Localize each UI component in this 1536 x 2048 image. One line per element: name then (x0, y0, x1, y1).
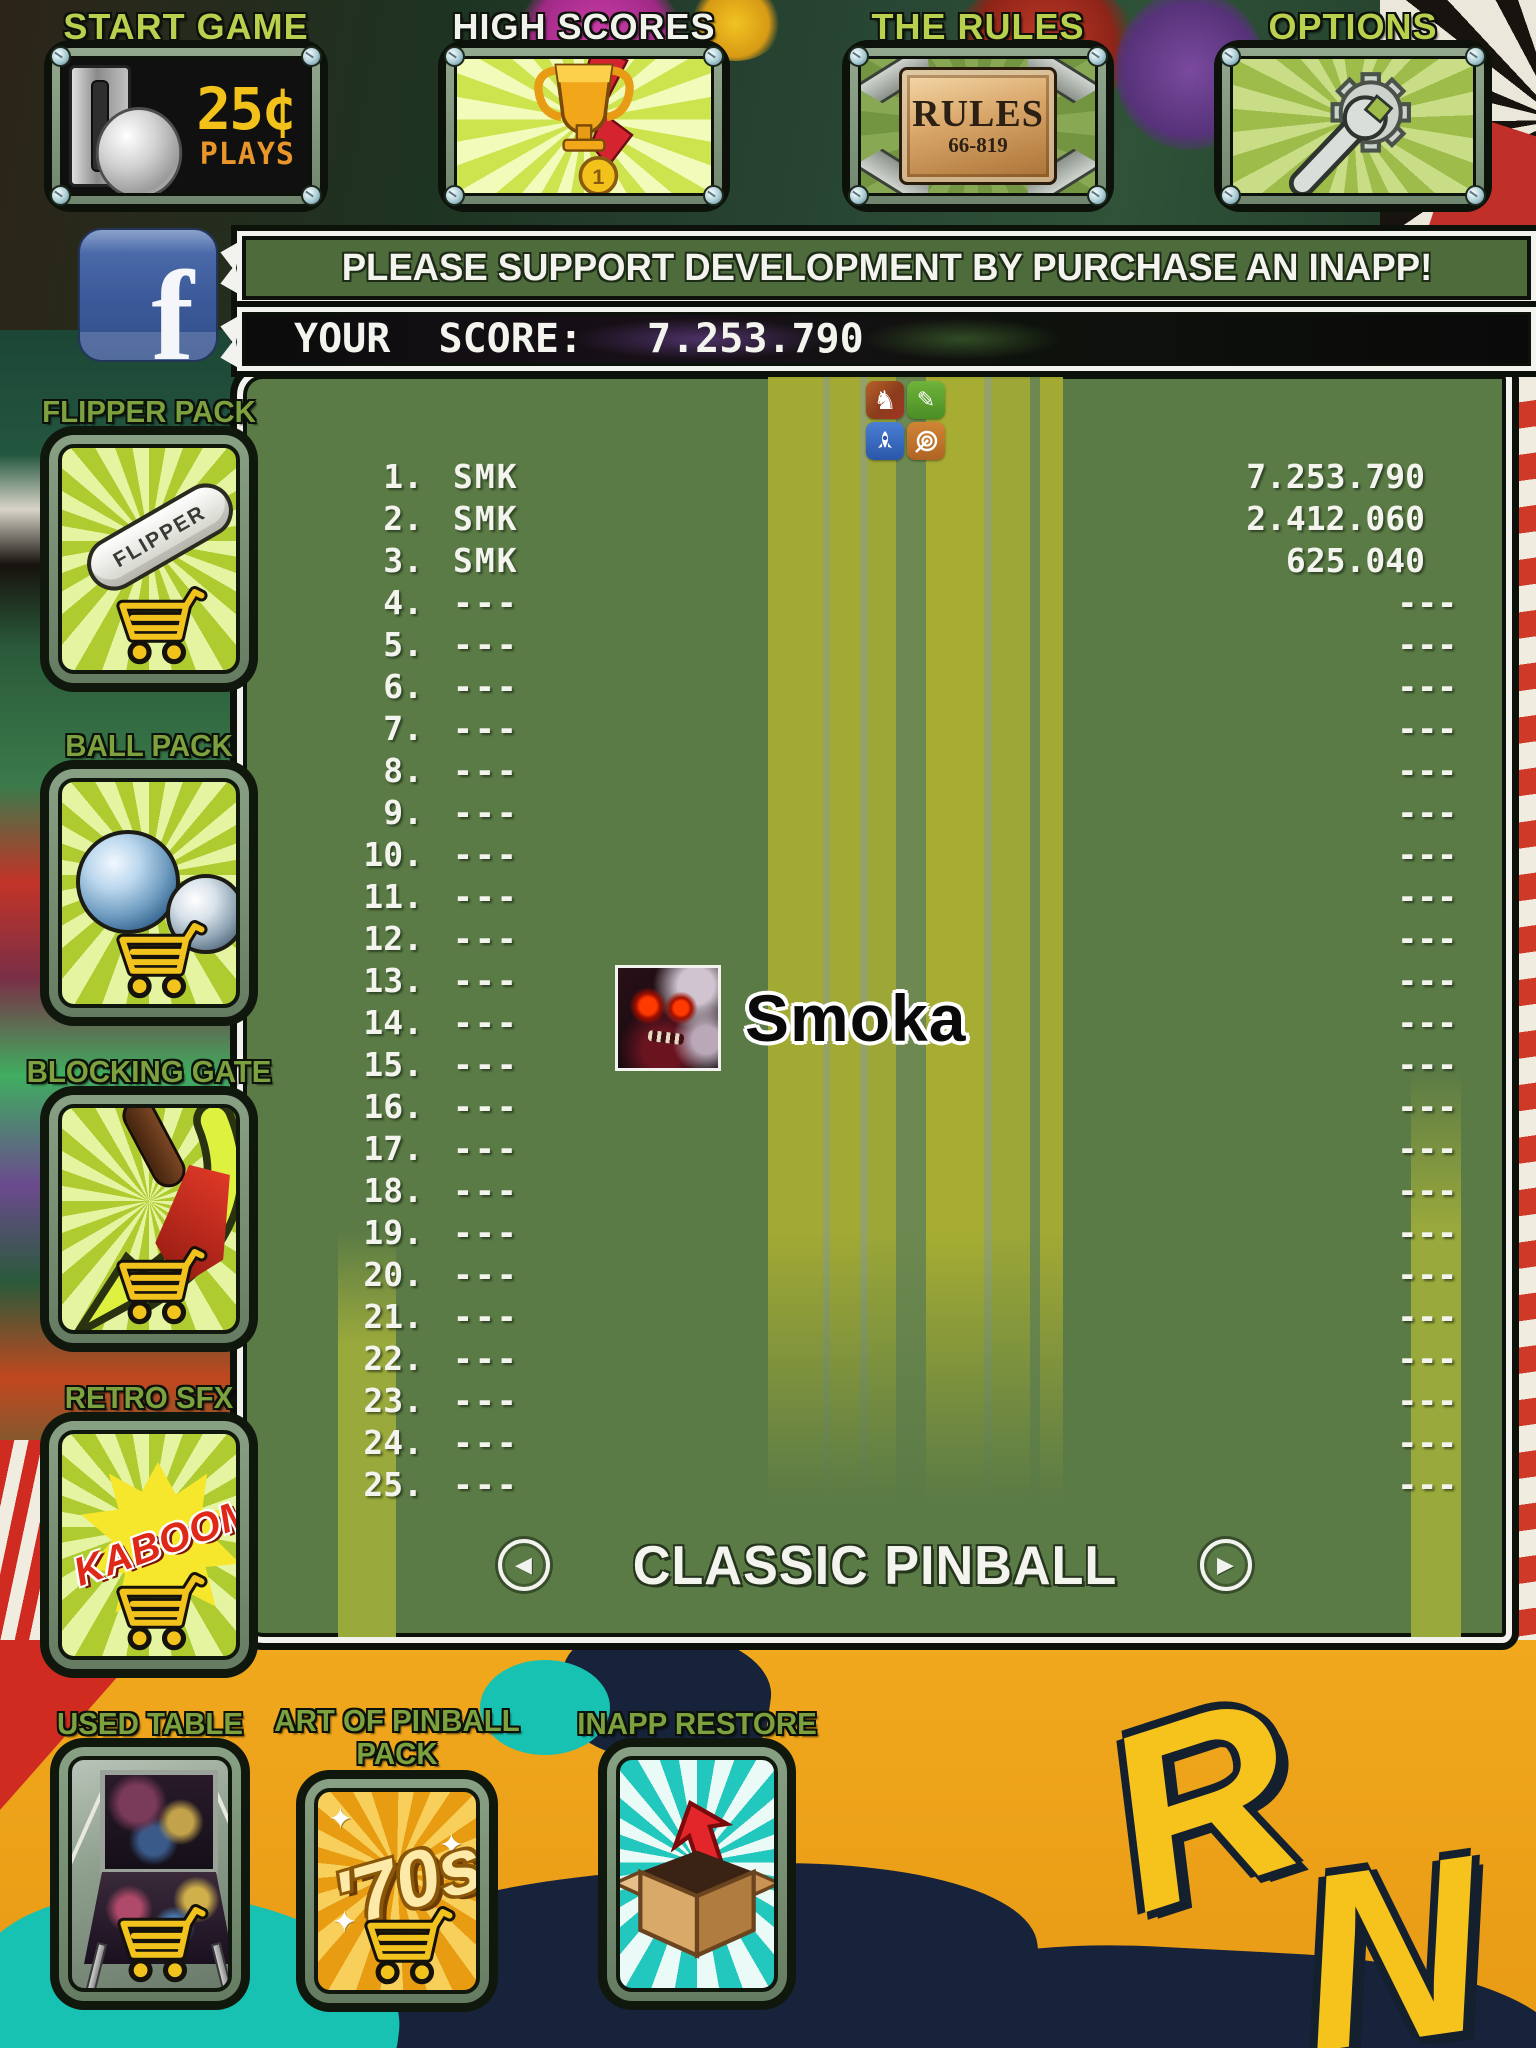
leaderboard-rank: 17. (271, 1129, 423, 1168)
player-overlay: Smoka (615, 965, 966, 1071)
leaderboard-rank: 14. (271, 1003, 423, 1042)
facebook-icon: f (151, 243, 194, 362)
pencil-app-icon[interactable]: ✎ (907, 381, 945, 419)
screw-icon (444, 46, 465, 67)
leaderboard-name: --- (453, 1255, 519, 1294)
cart-icon (108, 1240, 216, 1326)
leaderboard-name: --- (453, 919, 519, 958)
inapp-restore-button[interactable]: INAPP RESTORE (598, 1738, 796, 2010)
leaderboard-name: --- (453, 1423, 519, 1462)
leaderboard-rank: 20. (271, 1255, 423, 1294)
sparkle-icon: ✦ (328, 1802, 353, 1837)
background-graffiti-letters: R N (1040, 1650, 1536, 2048)
leaderboard-name: --- (453, 667, 519, 706)
medal-number: 1 (592, 164, 604, 189)
leaderboard-rank: 4. (271, 583, 423, 622)
highscores-panel: ♞ ✎ 1.SMK7.253.7902.SMK2.412.0603.SMK625… (237, 369, 1512, 1643)
app-icons-grid: ♞ ✎ (866, 381, 946, 460)
leaderboard-row: 17.------ (271, 1127, 1461, 1169)
screw-icon (301, 46, 322, 67)
leaderboard-row: 2.SMK2.412.060 (271, 497, 1461, 539)
retro-sfx-button[interactable]: RETRO SFX KABOOM (40, 1412, 258, 1678)
leaderboard-row: 18.------ (271, 1169, 1461, 1211)
rules-plaque-code: 66-819 (948, 133, 1008, 158)
chess-knight-app-icon[interactable]: ♞ (866, 381, 904, 419)
screw-icon (301, 185, 322, 206)
leaderboard-rank: 21. (271, 1297, 423, 1336)
screw-icon (1465, 46, 1486, 67)
cart-icon (108, 1566, 216, 1652)
leaderboard-name: SMK (453, 541, 519, 580)
leaderboard-name: --- (453, 709, 519, 748)
screw-icon (1220, 185, 1241, 206)
cart-icon (356, 1900, 464, 1986)
support-banner: PLEASE SUPPORT DEVELOPMENT BY PURCHASE A… (237, 231, 1536, 305)
leaderboard-score: --- (1397, 835, 1461, 874)
screw-icon (50, 46, 71, 67)
trophy-icon: 1 (524, 56, 644, 196)
rocket-app-icon[interactable] (866, 422, 904, 460)
start-game-button[interactable]: START GAME 25¢ PLAYS (44, 40, 328, 212)
ball-pack-button[interactable]: BALL PACK (40, 760, 258, 1026)
leaderboard-name: --- (453, 625, 519, 664)
leaderboard-rank: 24. (271, 1423, 423, 1462)
leaderboard-row: 10.------ (271, 833, 1461, 875)
leaderboard-row: 22.------ (271, 1337, 1461, 1379)
leaderboard-rank: 23. (271, 1381, 423, 1420)
leaderboard-row: 8.------ (271, 749, 1461, 791)
leaderboard-row: 6.------ (271, 665, 1461, 707)
coin-icon (96, 107, 182, 196)
leaderboard-score: --- (1397, 1339, 1461, 1378)
leaderboard-score: --- (1397, 667, 1461, 706)
leaderboard-rank: 25. (271, 1465, 423, 1504)
leaderboard-score: --- (1397, 1297, 1461, 1336)
your-score-label: YOUR SCORE: (294, 316, 583, 362)
flipper-text: FLIPPER (110, 501, 211, 573)
support-banner-text: PLEASE SUPPORT DEVELOPMENT BY PURCHASE A… (341, 247, 1432, 290)
leaderboard-name: --- (453, 877, 519, 916)
leaderboard-score: --- (1397, 1423, 1461, 1462)
coin-price: 25¢ (196, 81, 295, 137)
restore-box-icon (616, 1789, 778, 1969)
leaderboard-row: 12.------ (271, 917, 1461, 959)
flipper-pack-button[interactable]: FLIPPER PACK FLIPPER (40, 426, 258, 692)
leaderboard-score: 2.412.060 (1246, 499, 1461, 538)
screw-icon (1087, 46, 1108, 67)
used-table-label: USED TABLE (57, 1706, 243, 1742)
leaderboard-name: --- (453, 835, 519, 874)
screw-icon (703, 46, 724, 67)
rules-plaque: RULES 66-819 (899, 67, 1057, 185)
leaderboard-score: --- (1397, 877, 1461, 916)
leaderboard-rank: 22. (271, 1339, 423, 1378)
table-selector: ◀ CLASSIC PINBALL ▶ (243, 1525, 1506, 1605)
leaderboard-name: --- (453, 1087, 519, 1126)
leaderboard-rank: 1. (271, 457, 423, 496)
leaderboard-row: 4.------ (271, 581, 1461, 623)
player-avatar (615, 965, 721, 1071)
leaderboard-name: SMK (453, 457, 519, 496)
screw-icon (50, 185, 71, 206)
wrench-gear-icon (1278, 56, 1428, 196)
leaderboard-score: --- (1397, 625, 1461, 664)
leaderboard-score: --- (1397, 919, 1461, 958)
leaderboard-row: 24.------ (271, 1421, 1461, 1463)
art-of-pinball-pack-button[interactable]: ART OF PINBALL PACK ✦ ✦ ✦ '70s (296, 1770, 498, 2012)
high-scores-button[interactable]: HIGH SCORES 1 (438, 40, 730, 212)
used-table-button[interactable]: USED TABLE (50, 1738, 250, 2010)
leaderboard-rank: 11. (271, 877, 423, 916)
cart-icon (108, 914, 216, 1000)
leaderboard-score: 7.253.790 (1246, 457, 1461, 496)
leaderboard-rank: 12. (271, 919, 423, 958)
leaderboard-name: --- (453, 1129, 519, 1168)
leaderboard-row: 7.------ (271, 707, 1461, 749)
screw-icon (848, 185, 869, 206)
leaderboard-name: --- (453, 1003, 519, 1042)
prev-arrow-icon: ◀ (515, 1552, 532, 1578)
screw-icon (1220, 46, 1241, 67)
flipper-pack-label: FLIPPER PACK (42, 394, 256, 430)
leaderboard-rank: 19. (271, 1213, 423, 1252)
leaderboard-name: --- (453, 1297, 519, 1336)
leaderboard-rank: 9. (271, 793, 423, 832)
leaderboard-rank: 5. (271, 625, 423, 664)
retro-sfx-label: RETRO SFX (65, 1380, 234, 1416)
pinball-machine-backbox (100, 1770, 218, 1874)
leaderboard-rank: 18. (271, 1171, 423, 1210)
blocking-gate-label: BLOCKING GATE (27, 1054, 272, 1090)
leaderboard-name: --- (453, 1045, 519, 1084)
leaderboard-score: --- (1397, 793, 1461, 832)
screw-icon (1465, 185, 1486, 206)
leaderboard-name: --- (453, 1213, 519, 1252)
leaderboard-rank: 8. (271, 751, 423, 790)
leaderboard-score: --- (1397, 961, 1461, 1000)
leaderboard-score: --- (1397, 1213, 1461, 1252)
leaderboard-row: 5.------ (271, 623, 1461, 665)
leaderboard-rank: 16. (271, 1087, 423, 1126)
leaderboard-rank: 3. (271, 541, 423, 580)
the-rules-button[interactable]: THE RULES RULES 66-819 (842, 40, 1114, 212)
leaderboard-score: --- (1397, 1045, 1461, 1084)
options-button[interactable]: OPTIONS (1214, 40, 1492, 212)
player-name: Smoka (745, 980, 966, 1056)
leaderboard-name: --- (453, 961, 519, 1000)
ball-pack-label: BALL PACK (65, 728, 232, 764)
leaderboard-score: --- (1397, 709, 1461, 748)
art-of-pinball-pack-label: ART OF PINBALL PACK (274, 1704, 519, 1770)
leaderboard-name: --- (453, 1339, 519, 1378)
leaderboard-row: 20.------ (271, 1253, 1461, 1295)
leaderboard-rank: 2. (271, 499, 423, 538)
leaderboard-score: --- (1397, 1171, 1461, 1210)
leaderboard-name: --- (453, 1465, 519, 1504)
leaderboard-row: 19.------ (271, 1211, 1461, 1253)
leaderboard-name: --- (453, 1171, 519, 1210)
leaderboard-score: --- (1397, 1255, 1461, 1294)
leaderboard-row: 3.SMK625.040 (271, 539, 1461, 581)
facebook-button[interactable]: f (78, 228, 218, 362)
leaderboard-row: 16.------ (271, 1085, 1461, 1127)
leaderboard-score: --- (1397, 1129, 1461, 1168)
screw-icon (1087, 185, 1108, 206)
leaderboard-name: --- (453, 583, 519, 622)
leaderboard-score: 625.040 (1286, 541, 1461, 580)
your-score-value: 7.253.790 (647, 316, 864, 362)
blocking-gate-button[interactable]: BLOCKING GATE (40, 1086, 258, 1352)
pinball-highscores-screen: R N START GAME 25¢ PLAYS HIGH SCORES (0, 0, 1536, 2048)
cart-icon (109, 1898, 217, 1984)
plays-label: PLAYS (200, 137, 295, 172)
inapp-restore-label: INAPP RESTORE (577, 1706, 816, 1742)
screw-icon (703, 185, 724, 206)
leaderboard-row: 25.------ (271, 1463, 1461, 1505)
rules-plaque-title: RULES (912, 95, 1044, 133)
leaderboard-score: --- (1397, 1087, 1461, 1126)
screw-icon (444, 185, 465, 206)
target-app-icon[interactable] (907, 422, 945, 460)
leaderboard-name: --- (453, 1381, 519, 1420)
leaderboard-name: --- (453, 793, 519, 832)
leaderboard-score: --- (1397, 1003, 1461, 1042)
leaderboard-row: 1.SMK7.253.790 (271, 455, 1461, 497)
leaderboard-row: 23.------ (271, 1379, 1461, 1421)
table-name: CLASSIC PINBALL (632, 1533, 1117, 1597)
prev-table-button[interactable]: ◀ (498, 1539, 550, 1591)
leaderboard-name: SMK (453, 499, 519, 538)
leaderboard-rank: 10. (271, 835, 423, 874)
next-table-button[interactable]: ▶ (1200, 1539, 1252, 1591)
leaderboard-rank: 6. (271, 667, 423, 706)
leaderboard-rank: 7. (271, 709, 423, 748)
leaderboard-score: --- (1397, 583, 1461, 622)
cart-icon (108, 580, 216, 666)
leaderboard-rank: 13. (271, 961, 423, 1000)
your-score-bar: YOUR SCORE: 7.253.790 (237, 307, 1536, 371)
next-arrow-icon: ▶ (1217, 1552, 1234, 1578)
leaderboard-row: 21.------ (271, 1295, 1461, 1337)
leaderboard-score: --- (1397, 1381, 1461, 1420)
leaderboard-row: 9.------ (271, 791, 1461, 833)
screw-icon (848, 46, 869, 67)
leaderboard-name: --- (453, 751, 519, 790)
leaderboard-score: --- (1397, 1465, 1461, 1504)
leaderboard-row: 11.------ (271, 875, 1461, 917)
leaderboard-rank: 15. (271, 1045, 423, 1084)
leaderboard-score: --- (1397, 751, 1461, 790)
